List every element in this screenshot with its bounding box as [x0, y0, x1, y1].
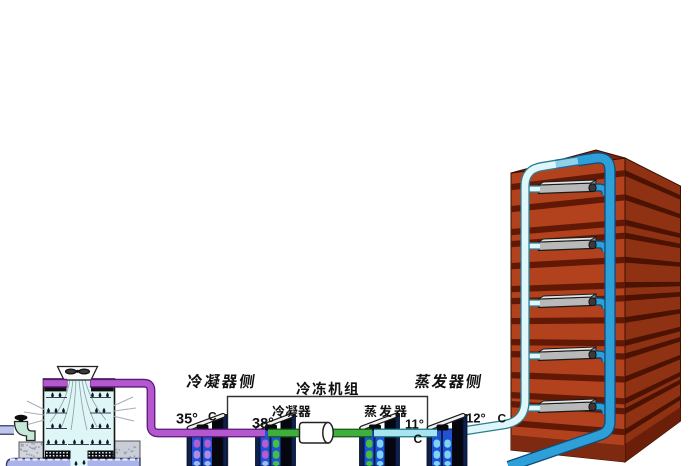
svg-text:12°: 12°	[466, 411, 486, 426]
svg-text:C: C	[414, 432, 423, 446]
svg-text:11°: 11°	[405, 417, 424, 432]
svg-text:C: C	[498, 412, 507, 426]
svg-text:38°: 38°	[252, 416, 274, 432]
svg-text:C: C	[208, 410, 217, 424]
svg-text:35°: 35°	[176, 412, 198, 428]
